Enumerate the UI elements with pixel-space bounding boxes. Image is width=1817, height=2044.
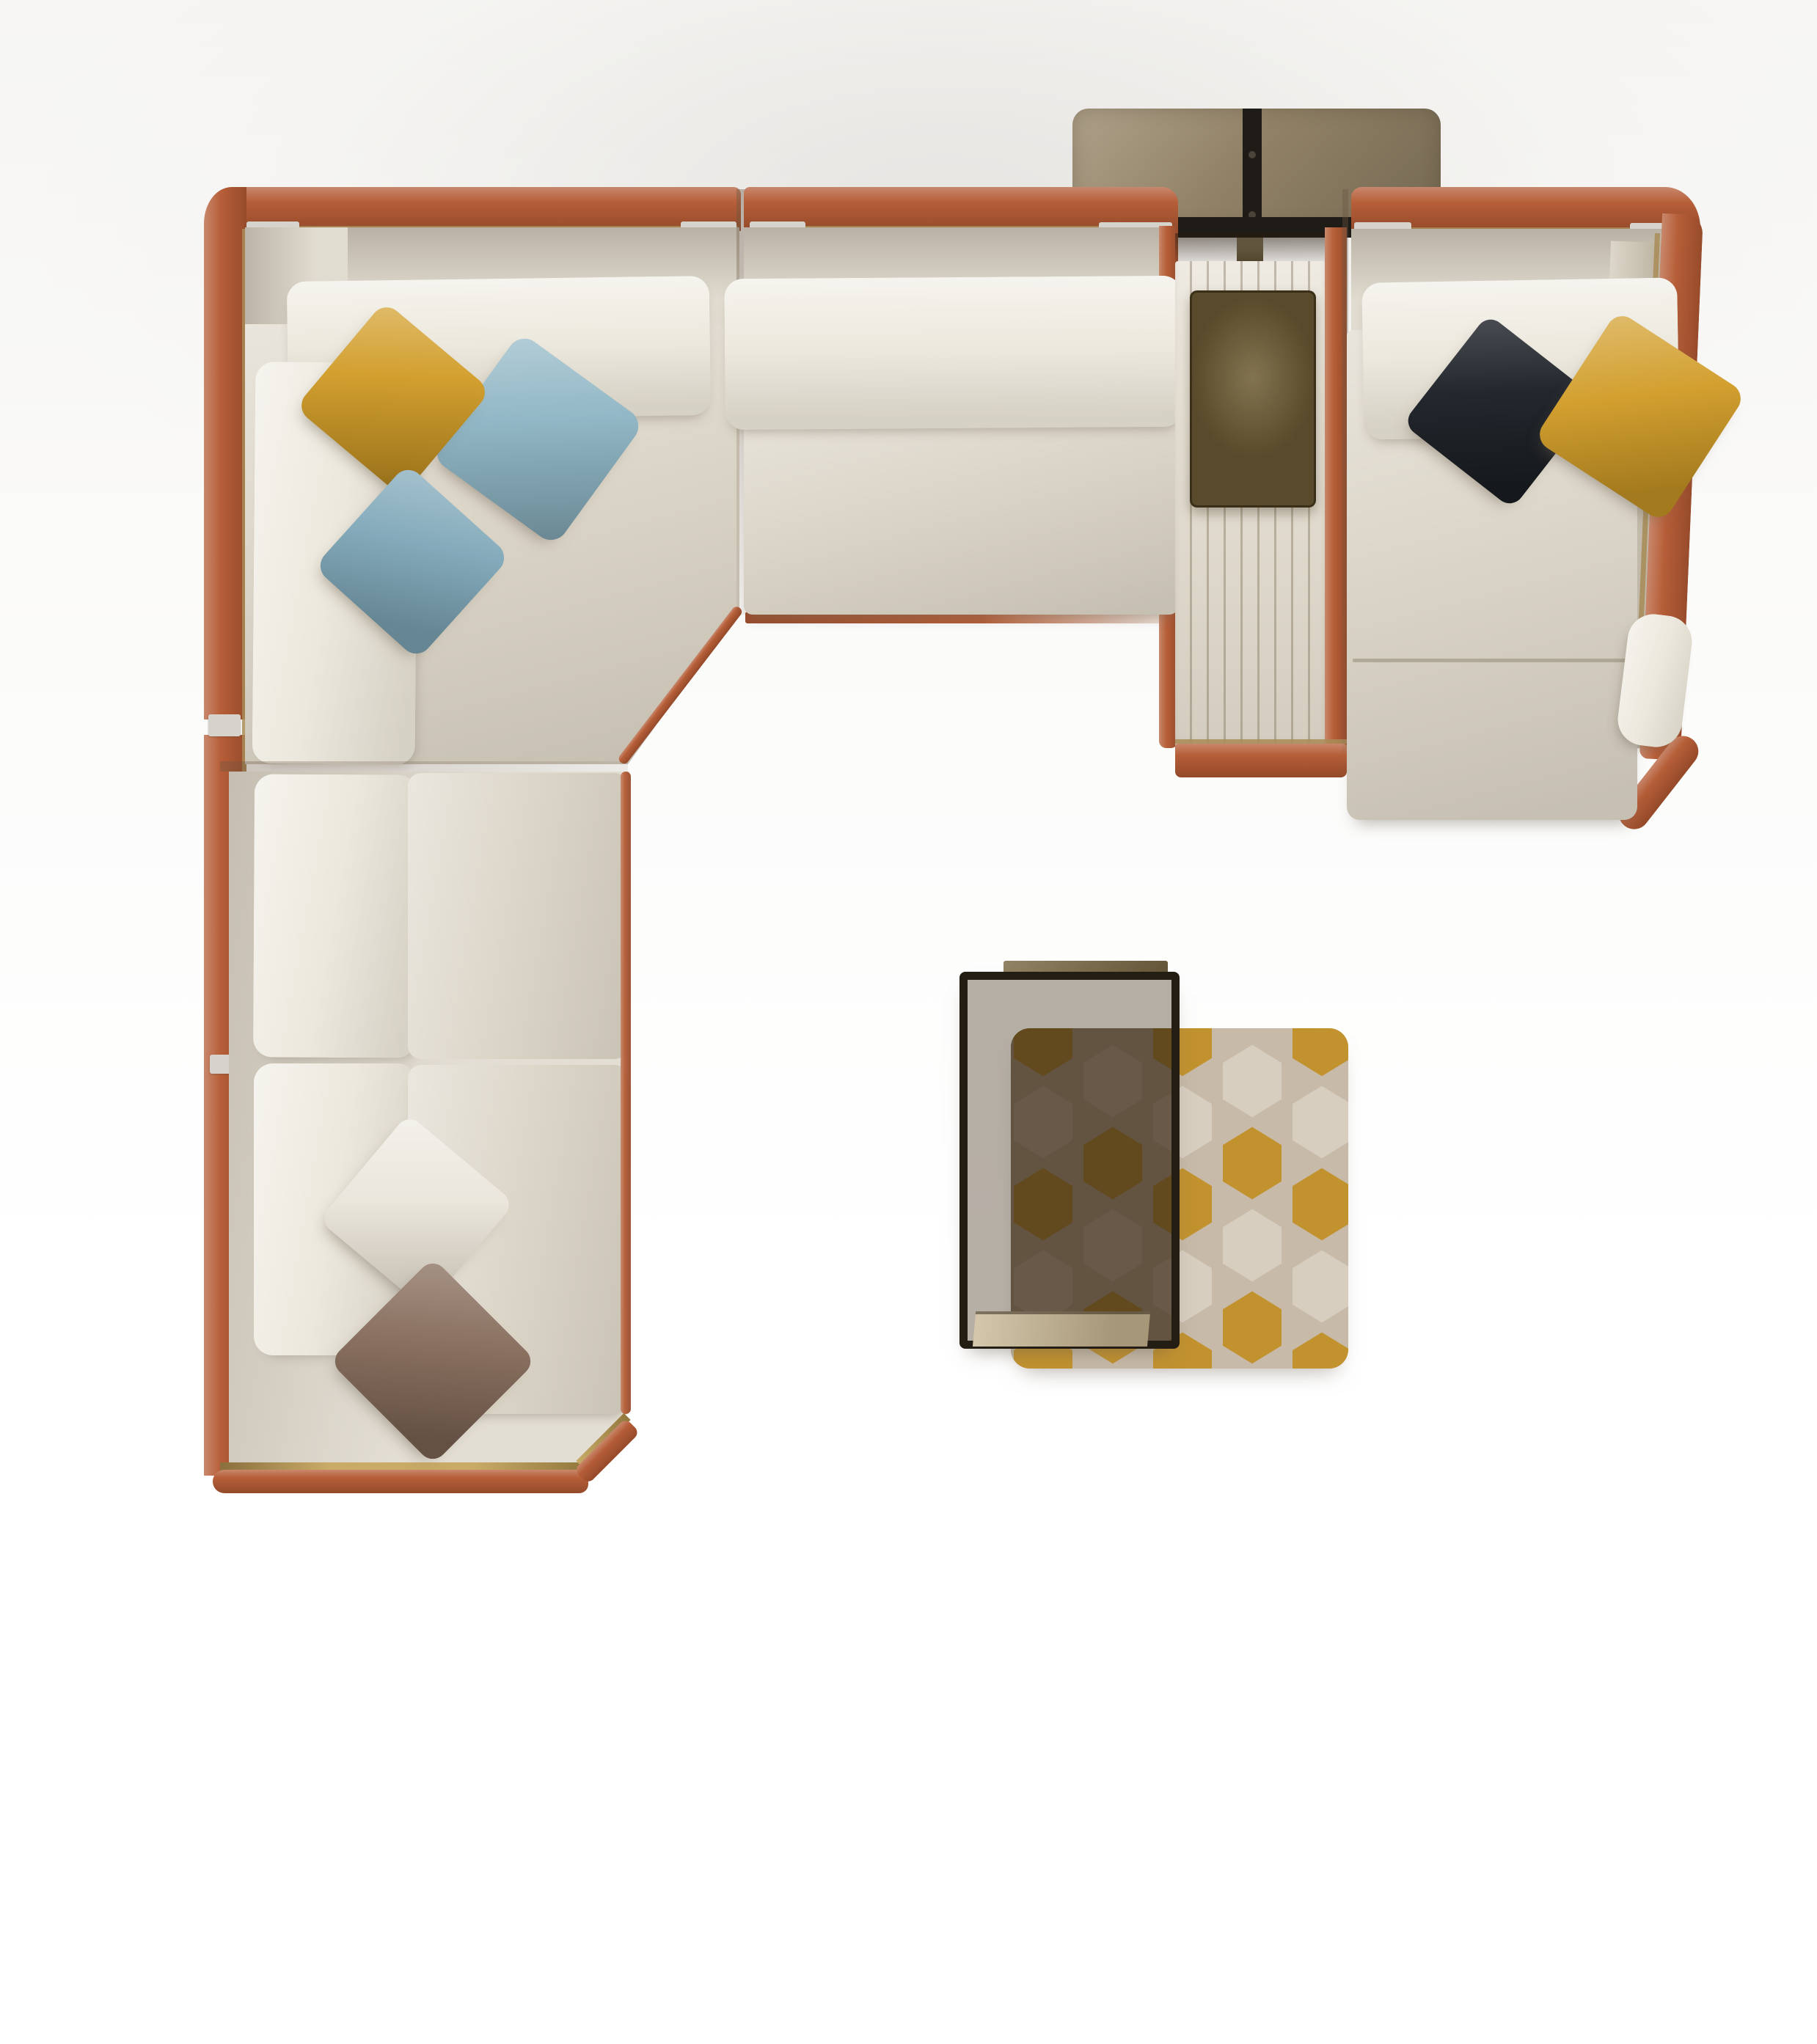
back-cushion [724, 276, 1182, 430]
coffee-table-shelf [973, 1311, 1150, 1347]
leather-trim-front [1175, 744, 1347, 777]
seat-cushion [408, 773, 628, 1059]
leather-base-lip [213, 1470, 588, 1493]
middle-seat [744, 402, 1178, 615]
leather-trim-side [621, 772, 631, 1414]
scene-top-view [0, 0, 1817, 2044]
metal-bracket [208, 714, 241, 736]
module-seam [220, 761, 628, 772]
back-cushion [253, 774, 417, 1058]
leather-trim-left [204, 187, 246, 719]
coffee-table-frame [959, 972, 1180, 1349]
leather-tray [1190, 290, 1316, 508]
strap-rivet [1248, 151, 1256, 158]
cushion-seam [1353, 659, 1631, 662]
